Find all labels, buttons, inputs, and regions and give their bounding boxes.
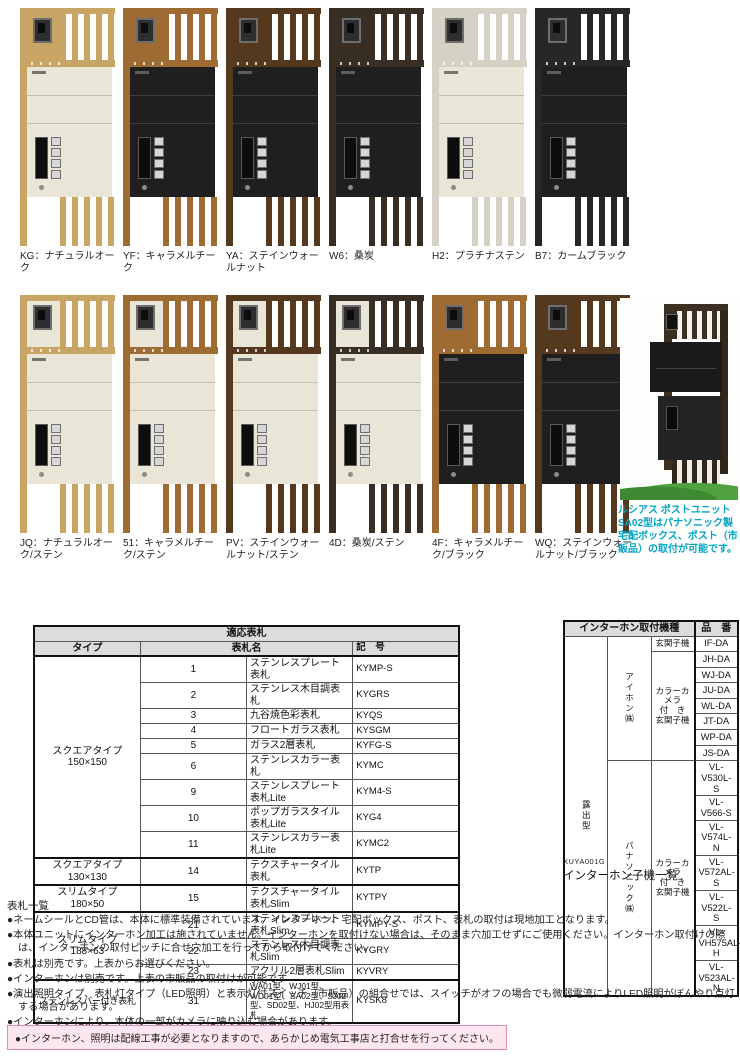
- product-YF: YF：キャラメルチーク: [123, 8, 218, 275]
- code-cell: KYSGM: [353, 724, 459, 739]
- top-left-panel: [439, 301, 472, 347]
- slats-bottom: [60, 484, 115, 533]
- key-button: [360, 148, 370, 157]
- divider-band: [439, 347, 527, 354]
- intercom-icon: [33, 305, 52, 330]
- divider-band: [130, 347, 218, 354]
- name-cell: ステンレスプレート表札Lite: [247, 780, 353, 806]
- mailbox-body: [233, 354, 318, 484]
- key-buttons: [257, 424, 267, 466]
- left-rail: [535, 295, 542, 533]
- part-number-cell: WP-DA: [695, 730, 739, 746]
- code-cell: KYM4-S: [353, 780, 459, 806]
- key-button: [51, 137, 61, 146]
- code-cell: KYMC2: [353, 832, 459, 859]
- name-cell: テクスチャータイル表札Slim: [247, 885, 353, 912]
- part-number-cell: JH-DA: [695, 652, 739, 668]
- part-number-cell: JS-DA: [695, 745, 739, 761]
- slats-bottom: [266, 484, 321, 533]
- col-header-type: タイプ: [34, 641, 140, 656]
- left-rail: [432, 8, 439, 246]
- mailbox-body: [27, 67, 112, 197]
- name-cell: テクスチャータイル表札: [247, 858, 353, 885]
- product-label: B7：カームブラック: [535, 251, 637, 263]
- brand-tag: [444, 358, 458, 361]
- intercom-table-caption: インターホン子機一覧: [563, 867, 678, 883]
- handset-type-line: 玄関子機: [655, 639, 691, 649]
- product-label: 51：キャラメルチーク/ステン: [123, 538, 225, 562]
- key-buttons: [463, 424, 473, 466]
- keyhole: [245, 472, 250, 477]
- key-button: [566, 457, 576, 466]
- door-line: [439, 410, 524, 411]
- type-line: スクエアタイプ: [38, 746, 137, 758]
- top-left-panel: [27, 14, 60, 60]
- handset-type-line: 玄関子機: [655, 716, 691, 726]
- code-cell: KYG4: [353, 806, 459, 832]
- product-label: H2：プラチナステン: [432, 251, 534, 263]
- part-number-cell: VL-V574L-N: [695, 820, 739, 855]
- key-button: [463, 148, 473, 157]
- key-button: [360, 435, 370, 444]
- no-cell: 4: [140, 724, 246, 739]
- top-left-panel: [542, 14, 575, 60]
- type-cell: スクエアタイプ150×150: [34, 656, 140, 858]
- intercom-icon: [136, 305, 155, 330]
- name-cell: ガラス2層表札: [247, 739, 353, 754]
- no-cell: 6: [140, 754, 246, 780]
- note-item: ●表札は別売です。上表からお選びください。: [7, 958, 735, 971]
- no-cell: 3: [140, 709, 246, 724]
- mount-type-label: 露出型: [582, 800, 591, 832]
- keyhole: [451, 472, 456, 477]
- door-line: [233, 123, 318, 124]
- slats-bottom: [60, 197, 115, 246]
- note-item: ●インターホンは別売です。上表の市販品の取付けが可能です: [7, 973, 735, 986]
- mailbox-body: [130, 67, 215, 197]
- photo-mailbox: [650, 342, 722, 392]
- key-button: [360, 137, 370, 146]
- table-row: スクエアタイプ130×13014テクスチャータイル表札KYTP: [34, 858, 459, 885]
- door-line: [233, 410, 318, 411]
- key-button: [360, 170, 370, 179]
- product-label: PV：ステインウォールナット/ステン: [226, 538, 328, 562]
- left-rail: [432, 295, 439, 533]
- key-button: [154, 148, 164, 157]
- mail-slot-line: [336, 382, 421, 383]
- mail-slot-line: [233, 382, 318, 383]
- intercom-icon: [239, 18, 258, 43]
- key-button: [463, 159, 473, 168]
- mail-slot-line: [130, 382, 215, 383]
- left-rail: [329, 295, 336, 533]
- catalog-page: KG：ナチュラルオークYF：キャラメルチークYA：ステインウォールナットW6：桑…: [0, 0, 740, 1059]
- handset-type-line: カラーカメラ: [655, 687, 691, 707]
- nameplate-table-title: 適応表札: [34, 626, 459, 641]
- type-cell: スリムタイプ180×50: [34, 885, 140, 912]
- product-label: YF：キャラメルチーク: [123, 251, 225, 275]
- code-cell: KYGRS: [353, 683, 459, 709]
- products-row-2: JQ：ナチュラルオーク/ステン51：キャラメルチーク/ステンPV：ステインウォー…: [20, 295, 630, 562]
- part-number-cell: VL-V572AL-S: [695, 855, 739, 890]
- key-button: [51, 159, 61, 168]
- name-cell: ステンレスカラー表札Lite: [247, 832, 353, 859]
- table-header-row: インターホン取付機種品 番: [564, 621, 738, 636]
- no-cell: 11: [140, 832, 246, 859]
- warning-box: ●インターホン、照明は配線工事が必要となりますので、あらかじめ電気工事店と打合せ…: [7, 1025, 507, 1050]
- code-cell: KYTPY: [353, 885, 459, 912]
- door-line: [336, 410, 421, 411]
- key-button: [566, 435, 576, 444]
- top-left-panel: [542, 301, 575, 347]
- key-button: [566, 170, 576, 179]
- product-label: KG：ナチュラルオーク: [20, 251, 122, 275]
- divider-band: [27, 60, 115, 67]
- key-button: [257, 457, 267, 466]
- product-label: YA：ステインウォールナット: [226, 251, 328, 275]
- key-button: [257, 435, 267, 444]
- code-cell: KYFG-S: [353, 739, 459, 754]
- slats-bottom: [369, 484, 424, 533]
- key-button: [566, 446, 576, 455]
- slats-bottom: [575, 197, 630, 246]
- keyhole: [142, 185, 147, 190]
- key-buttons: [463, 137, 473, 179]
- product-4F: 4F：キャラメルチーク/ブラック: [432, 295, 527, 562]
- no-cell: 14: [140, 858, 246, 885]
- mail-slot-line: [27, 382, 112, 383]
- intercom-icon: [342, 18, 361, 43]
- keypad-panel: [241, 424, 254, 466]
- brand-tag: [32, 358, 46, 361]
- product-label: W6：桑炭: [329, 251, 431, 263]
- door-line: [542, 410, 627, 411]
- keypad-panel: [344, 424, 357, 466]
- products-row-1: KG：ナチュラルオークYF：キャラメルチークYA：ステインウォールナットW6：桑…: [20, 8, 630, 275]
- key-button: [154, 424, 164, 433]
- note-item: ●ネームシールとCD管は、本体に標準装備されています。インターホン、宅配ボックス…: [7, 914, 735, 927]
- door-line: [439, 123, 524, 124]
- handset-type-cell: 玄関子機: [651, 636, 695, 652]
- part-number-cell: JT-DA: [695, 714, 739, 730]
- keypad-panel: [138, 424, 151, 466]
- sa02-photo-caption: ルシアス ポストユニット SA02型はパナソニック製宅配ボックス、ポスト（市販品…: [618, 504, 740, 556]
- key-button: [463, 137, 473, 146]
- brand-tag: [32, 71, 46, 74]
- key-button: [51, 435, 61, 444]
- divider-band: [233, 60, 321, 67]
- mailbox-body: [439, 67, 524, 197]
- key-buttons: [154, 137, 164, 179]
- brand-tag: [238, 71, 252, 74]
- name-cell: フロートガラス表札: [247, 724, 353, 739]
- slats-bottom: [163, 484, 218, 533]
- brand-tag: [135, 358, 149, 361]
- nameplate-table-caption: 表札一覧: [7, 898, 49, 913]
- photo-grass: [620, 458, 738, 500]
- handset-type-cell: カラーカメラ付 き玄関子機: [651, 652, 695, 761]
- key-buttons: [566, 137, 576, 179]
- slats-bottom: [369, 197, 424, 246]
- type-line: 150×150: [38, 757, 137, 769]
- key-button: [257, 446, 267, 455]
- keypad-panel: [344, 137, 357, 179]
- intercom-table-title: インターホン取付機種: [564, 621, 695, 636]
- slats-bottom: [266, 197, 321, 246]
- name-cell: ポップガラスタイル表札Lite: [247, 806, 353, 832]
- key-button: [257, 170, 267, 179]
- no-cell: 15: [140, 885, 246, 912]
- key-button: [463, 435, 473, 444]
- key-button: [360, 446, 370, 455]
- product-PV: PV：ステインウォールナット/ステン: [226, 295, 321, 562]
- key-button: [51, 457, 61, 466]
- type-line: 180×50: [38, 899, 137, 911]
- product-B7: B7：カームブラック: [535, 8, 630, 275]
- part-number-cell: VL-V566-S: [695, 796, 739, 820]
- key-buttons: [154, 424, 164, 466]
- product-unit: [329, 295, 424, 533]
- key-button: [257, 137, 267, 146]
- product-unit: [535, 8, 630, 246]
- intercom-icon: [136, 18, 155, 43]
- key-button: [257, 159, 267, 168]
- intercom-icon: [666, 314, 678, 330]
- keypad-panel: [550, 424, 563, 466]
- divider-band: [542, 60, 630, 67]
- no-cell: 10: [140, 806, 246, 832]
- key-button: [51, 170, 61, 179]
- product-WQ: WQ：ステインウォールナット/ブラック: [535, 295, 630, 562]
- left-rail: [535, 8, 542, 246]
- slats-bottom: [472, 197, 527, 246]
- keyhole: [451, 185, 456, 190]
- col-header-part: 品 番: [695, 621, 739, 636]
- no-cell: 9: [140, 780, 246, 806]
- mailbox-body: [130, 354, 215, 484]
- mailbox-body: [233, 67, 318, 197]
- brand-tag: [238, 358, 252, 361]
- intercom-icon: [445, 305, 464, 330]
- code-cell: KYQS: [353, 709, 459, 724]
- product-label: 4F：キャラメルチーク/ブラック: [432, 538, 534, 562]
- keyhole: [39, 472, 44, 477]
- product-KG: KG：ナチュラルオーク: [20, 8, 115, 275]
- product-JQ: JQ：ナチュラルオーク/ステン: [20, 295, 115, 562]
- slats-bottom: [472, 484, 527, 533]
- part-number-cell: JU-DA: [695, 683, 739, 699]
- key-button: [51, 424, 61, 433]
- key-button: [154, 159, 164, 168]
- intercom-icon: [239, 305, 258, 330]
- table-row: スリムタイプ180×5015テクスチャータイル表札SlimKYTPY: [34, 885, 459, 912]
- product-unit: [123, 8, 218, 246]
- brand-tag: [341, 71, 355, 74]
- key-button: [566, 159, 576, 168]
- key-button: [154, 446, 164, 455]
- no-cell: 2: [140, 683, 246, 709]
- name-cell: ステンレスカラー表札: [247, 754, 353, 780]
- left-rail: [123, 295, 130, 533]
- photo-delivery-box: [658, 396, 722, 460]
- keypad-panel: [550, 137, 563, 179]
- mail-slot-line: [542, 95, 627, 96]
- intercom-icon: [342, 305, 361, 330]
- door-line: [130, 123, 215, 124]
- table-row: スクエアタイプ150×1501ステンレスプレート表札KYMP-S: [34, 656, 459, 683]
- product-unit: [535, 295, 630, 533]
- key-button: [154, 170, 164, 179]
- top-left-panel: [336, 301, 369, 347]
- table-row: 露出型アイホン㈱玄関子機IF-DA: [564, 636, 738, 652]
- key-button: [257, 148, 267, 157]
- key-button: [463, 457, 473, 466]
- mailbox-body: [336, 67, 421, 197]
- part-number-cell: WJ-DA: [695, 667, 739, 683]
- door-line: [27, 410, 112, 411]
- door-line: [336, 123, 421, 124]
- key-button: [154, 457, 164, 466]
- keypad-panel: [138, 137, 151, 179]
- keyhole: [245, 185, 250, 190]
- mail-slot-line: [439, 382, 524, 383]
- name-cell: ステンレスプレート表札: [247, 656, 353, 683]
- mail-slot-line: [542, 382, 627, 383]
- code-cell: KYMC: [353, 754, 459, 780]
- keypad-panel: [35, 424, 48, 466]
- key-buttons: [566, 424, 576, 466]
- left-rail: [20, 8, 27, 246]
- note-item: ●本体ユニットにインターホン加工は施されていません。インターホンを取付けない場合…: [7, 929, 735, 955]
- product-51: 51：キャラメルチーク/ステン: [123, 295, 218, 562]
- intercom-icon: [33, 18, 52, 43]
- key-buttons: [360, 137, 370, 179]
- mailbox-body: [336, 354, 421, 484]
- name-cell: 九谷焼色彩表札: [247, 709, 353, 724]
- mail-slot-line: [27, 95, 112, 96]
- col-header-code: 記 号: [353, 641, 459, 656]
- key-buttons: [360, 424, 370, 466]
- left-rail: [20, 295, 27, 533]
- mailbox-body: [542, 354, 627, 484]
- part-number-cell: WL-DA: [695, 698, 739, 714]
- door-line: [27, 123, 112, 124]
- left-rail: [226, 8, 233, 246]
- intercom-icon: [445, 18, 464, 43]
- divider-band: [439, 60, 527, 67]
- top-left-panel: [336, 14, 369, 60]
- top-left-panel: [27, 301, 60, 347]
- keypad-panel: [241, 137, 254, 179]
- product-W6: W6：桑炭: [329, 8, 424, 275]
- key-button: [154, 435, 164, 444]
- top-left-panel: [130, 301, 163, 347]
- divider-band: [130, 60, 218, 67]
- left-rail: [329, 8, 336, 246]
- key-button: [360, 159, 370, 168]
- notes-list: ●ネームシールとCD管は、本体に標準装備されています。インターホン、宅配ボックス…: [7, 914, 735, 1032]
- divider-band: [542, 347, 630, 354]
- part-number-cell: VL-V530L-S: [695, 761, 739, 796]
- mailbox-body: [27, 354, 112, 484]
- intercom-icon: [548, 305, 567, 330]
- mail-slot-line: [130, 95, 215, 96]
- product-4D: 4D：桑炭/ステン: [329, 295, 424, 562]
- keyhole: [39, 185, 44, 190]
- handset-type-line: 玄関子機: [655, 888, 691, 898]
- photo-top-bar: [664, 304, 728, 311]
- door-line: [542, 123, 627, 124]
- left-rail: [226, 295, 233, 533]
- keypad-panel: [447, 137, 460, 179]
- divider-band: [233, 347, 321, 354]
- divider-band: [336, 347, 424, 354]
- brand-tag: [341, 358, 355, 361]
- key-button: [360, 457, 370, 466]
- code-cell: KYTP: [353, 858, 459, 885]
- key-button: [257, 424, 267, 433]
- mailbox-body: [542, 67, 627, 197]
- keyhole: [348, 472, 353, 477]
- no-cell: 1: [140, 656, 246, 683]
- keypad-panel: [35, 137, 48, 179]
- product-H2: H2：プラチナステン: [432, 8, 527, 275]
- left-rail: [123, 8, 130, 246]
- product-unit: [20, 295, 115, 533]
- product-YA: YA：ステインウォールナット: [226, 8, 321, 275]
- type-cell: スクエアタイプ130×130: [34, 858, 140, 885]
- key-button: [566, 137, 576, 146]
- brand-tag: [547, 358, 561, 361]
- product-unit: [123, 295, 218, 533]
- key-button: [463, 170, 473, 179]
- col-header-name: 表札名: [140, 641, 353, 656]
- maker-cell: アイホン㈱: [608, 636, 652, 761]
- key-button: [154, 137, 164, 146]
- product-unit: [432, 295, 527, 533]
- intercom-icon: [548, 18, 567, 43]
- type-line: スリムタイプ: [38, 887, 137, 899]
- key-button: [360, 424, 370, 433]
- note-item: ●演出照明タイプ、表札灯タイプ（LED照明）と表示灯付スイッチ（市販品）の組合せ…: [7, 988, 735, 1014]
- table-header-row: タイプ表札名記 号: [34, 641, 459, 656]
- product-unit: [226, 295, 321, 533]
- product-unit: [329, 8, 424, 246]
- key-buttons: [51, 424, 61, 466]
- type-line: 130×130: [38, 872, 137, 884]
- mail-slot-line: [233, 95, 318, 96]
- maker-label: アイホン㈱: [625, 672, 634, 725]
- intercom-table-code: XUYA001G: [563, 857, 605, 866]
- brand-tag: [135, 71, 149, 74]
- sa02-photo: [620, 298, 738, 500]
- product-unit: [226, 8, 321, 246]
- top-left-panel: [233, 301, 266, 347]
- keyhole: [554, 472, 559, 477]
- keypad-panel: [447, 424, 460, 466]
- key-button: [51, 148, 61, 157]
- key-button: [463, 446, 473, 455]
- key-buttons: [51, 137, 61, 179]
- type-line: スクエアタイプ: [38, 860, 137, 872]
- mail-slot-line: [439, 95, 524, 96]
- keyhole: [554, 185, 559, 190]
- photo-slats-top: [672, 311, 720, 339]
- keyhole: [348, 185, 353, 190]
- top-left-panel: [439, 14, 472, 60]
- key-button: [566, 148, 576, 157]
- product-unit: [432, 8, 527, 246]
